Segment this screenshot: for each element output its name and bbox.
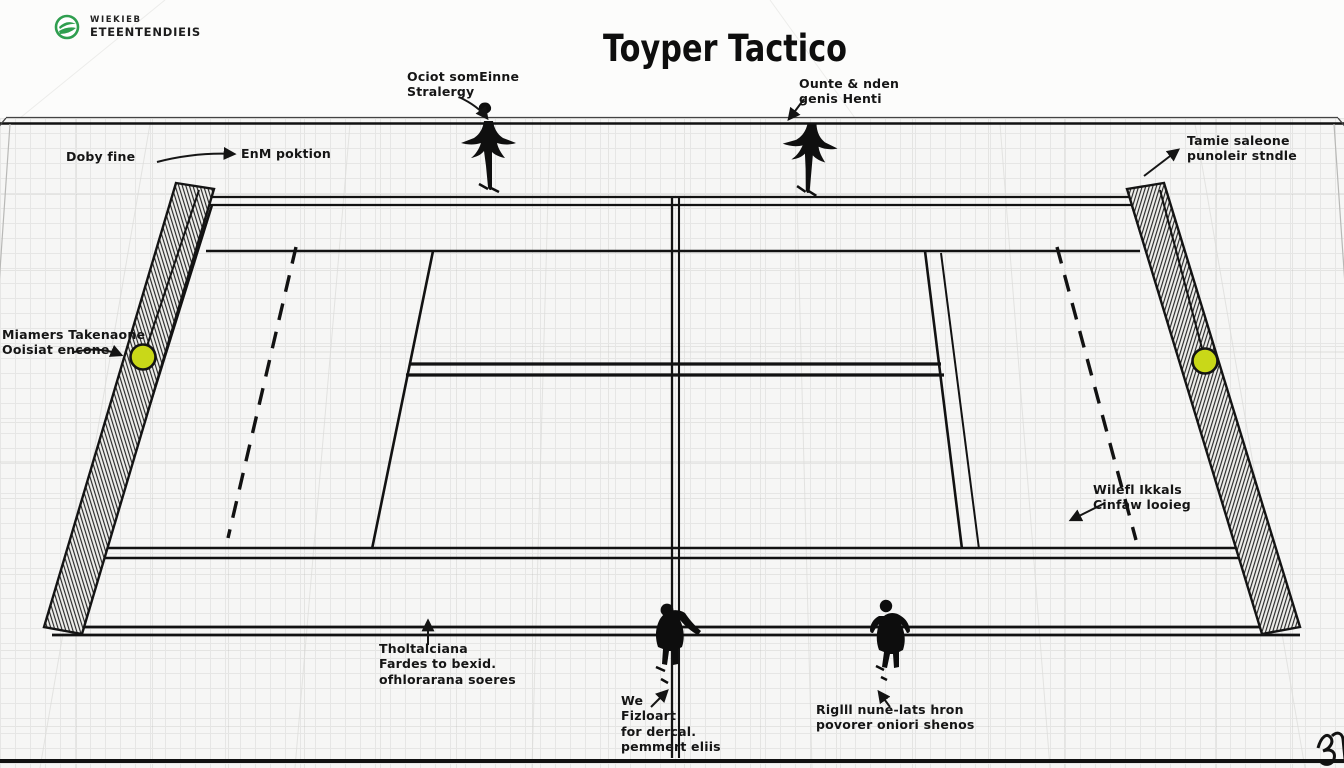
label-baseline-left-b: EnM poktion xyxy=(241,146,331,161)
court-lines xyxy=(52,197,1300,758)
label-line: We xyxy=(621,693,721,708)
logo-line1: WIEKIEB xyxy=(90,15,201,25)
label-line: Wilefl Ikkals xyxy=(1093,482,1191,497)
label-line: Ooisiat encone xyxy=(2,342,145,357)
page-title: Toyper Tactico xyxy=(590,27,861,70)
logo-text: WIEKIEB ETEENTENDIEIS xyxy=(90,15,201,39)
label-line: Fizloart xyxy=(621,708,721,723)
tactics-diagram: WIEKIEB ETEENTENDIEIS Toyper Tactico Oci… xyxy=(0,0,1344,768)
ball-icon-right xyxy=(1193,349,1218,374)
logo-icon xyxy=(52,12,82,42)
label-line: Tamie saleone xyxy=(1187,133,1297,148)
annotation-arrows xyxy=(74,97,1178,707)
label-line: povorer oniori shenos xyxy=(816,717,975,732)
left-net xyxy=(44,183,214,634)
label-line: Ociot somEinne xyxy=(407,69,519,84)
label-corner-strategy: Ociot somEinne Stralergy xyxy=(407,69,519,100)
arrow-figure-icon-right xyxy=(778,122,839,198)
label-line: Miamers Takenaone xyxy=(2,327,145,342)
court-illustration xyxy=(0,0,1344,768)
right-net xyxy=(1127,183,1300,634)
label-mid-left: Miamers Takenaone Ooisiat encone xyxy=(2,327,145,358)
arrow-figure-icon-left xyxy=(461,103,516,193)
label-line: punoleir stndle xyxy=(1187,148,1297,163)
label-line: Doby fine xyxy=(66,149,135,164)
player-icon-right xyxy=(870,600,910,680)
label-line: EnM poktion xyxy=(241,146,331,161)
label-opponent-goals: Ounte & nden genis Henti xyxy=(799,76,899,107)
label-line: pemmert eliis xyxy=(621,739,721,754)
label-top-right: Tamie saleone punoleir stndle xyxy=(1187,133,1297,164)
label-line: Stralergy xyxy=(407,84,519,99)
label-bottom-right: Riglll nune-lats hron povorer oniori she… xyxy=(816,702,975,733)
label-mid-right: Wilefl Ikkals Cinfaw looieg xyxy=(1093,482,1191,513)
label-line: Tholtalciana xyxy=(379,641,516,656)
label-line: Riglll nune-lats hron xyxy=(816,702,975,717)
label-bottom-center: We Fizloart for dercal. pemmert eliis xyxy=(621,693,721,754)
label-baseline-left-a: Doby fine xyxy=(66,149,135,164)
arrow-baseline-left xyxy=(157,154,234,162)
dashed-line-left xyxy=(228,247,296,538)
label-line: Fardes to bexid. xyxy=(379,656,516,671)
label-line: Ounte & nden xyxy=(799,76,899,91)
label-line: Cinfaw looieg xyxy=(1093,497,1191,512)
label-line: genis Henti xyxy=(799,91,899,106)
logo: WIEKIEB ETEENTENDIEIS xyxy=(52,12,201,42)
arrow-to-top-right xyxy=(1144,150,1178,176)
label-line: for dercal. xyxy=(621,724,721,739)
label-line: ofhlorarana soeres xyxy=(379,672,516,687)
label-bottom-left: Tholtalciana Fardes to bexid. ofhloraran… xyxy=(379,641,516,687)
logo-line2: ETEENTENDIEIS xyxy=(90,25,201,39)
